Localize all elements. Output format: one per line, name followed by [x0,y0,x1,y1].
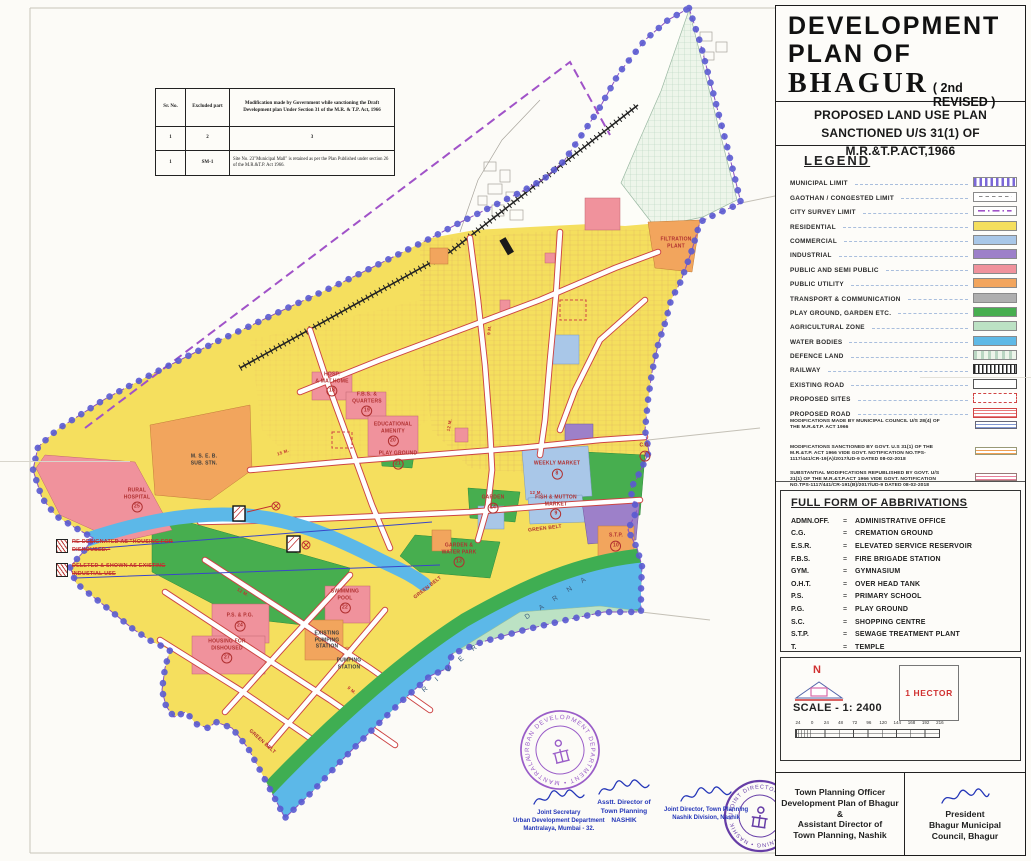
deletion-note-text: RE-DESIGNATED AS "HOUSING FOR DISHOUSED.… [72,538,190,554]
abbreviation-full: PLAY GROUND [855,606,908,613]
table-header-row: Sr. No. Excluded part Modification made … [156,89,394,127]
legend-leader [849,342,968,343]
table-header: Modification made by Government while sa… [230,89,394,127]
table-cell: 2 [186,127,230,151]
legend-swatch [973,350,1017,360]
legend-item: INDUSTRIAL [790,245,1017,259]
urban-development-stamp: URBAN DEVELOPMENT DEPARTMENT • MANTRALAY… [518,708,602,797]
legend-item: DEFENCE LAND [790,346,1017,360]
legend-item: PLAY GROUND, GARDEN ETC. [790,303,1017,317]
legend-item-label: DEFENCE LAND [790,353,844,360]
scale-number: 96 [863,720,875,725]
legend-item-label: SUBSTANTIAL MODIFICATIONS REPUBLISHED BY… [790,471,942,490]
president-box: PresidentBhagur MunicipalCouncil, Bhagur [905,773,1025,855]
legend-items: MUNICIPAL LIMIT GAOTHAN / CONGESTED LIMI… [790,173,1017,496]
equals-sign: = [843,556,855,563]
legend-leader [844,241,968,242]
table-cell: 1 [156,151,186,175]
scale-number: 72 [849,720,861,725]
modification-table: Sr. No. Excluded part Modification made … [155,88,395,176]
legend-item: MUNICIPAL LIMIT [790,173,1017,187]
legend-item-label: GAOTHAN / CONGESTED LIMIT [790,195,894,202]
table-cell: SM-1 [186,151,230,175]
official-title-line: Town Planning, Nashik [793,830,886,841]
legend-item: TRANSPORT & COMMUNICATION [790,288,1017,302]
signatory-title: Joint Secretary [513,809,605,817]
legend-swatch [973,393,1017,403]
signatory-dept: Town Planning [596,808,652,817]
president-signature-icon [938,788,992,808]
official-title-line: Council, Bhagur [929,831,1001,842]
table-cell: 1 [156,127,186,151]
legend-item: MODIFICATIONS SANCTIONED BY GOVT. U.S 31… [790,445,1017,470]
legend-leader [828,371,968,372]
plan-sheet: M. S. E. B. SUB. STN. RURAL HOSPITAL 25 … [0,0,1031,861]
legend-item: RAILWAY [790,360,1017,374]
official-title-line: President [929,809,1001,820]
abbreviation-full: TEMPLE [855,644,885,651]
president-lines: PresidentBhagur MunicipalCouncil, Bhagur [929,809,1001,843]
abbreviation-full: FIRE BRIGADE STATION [855,556,941,563]
equals-sign: = [843,518,855,525]
equals-sign: = [843,568,855,575]
legend-swatch [973,307,1017,317]
legend-leader [839,256,968,257]
signature-scribble-icon [678,785,734,807]
table-cell: 3 [230,127,394,151]
table-cell: Site No. 23"Municipal Mall" is retained … [230,151,394,175]
abbreviation-short: O.H.T. [791,581,843,588]
abbreviation-short: E.S.R. [791,543,843,550]
legend-item-label: MODIFICATIONS SANCTIONED BY GOVT. U.S 31… [790,445,942,464]
official-title-line: & [837,809,843,820]
legend-item-label: INDUSTRIAL [790,252,832,259]
legend-item-label: WATER BODIES [790,339,842,346]
legend-item-label: MUNICIPAL LIMIT [790,180,848,187]
legend-item-label: MODIFICATIONS MADE BY MUNICIPAL COUNCIL … [790,419,942,432]
abbreviation-short: S.T.P. [791,631,843,638]
signature-scribble-icon [596,778,652,800]
abbreviation-short: T. [791,644,843,651]
abbreviation-short: F.B.S. [791,556,843,563]
scale-number: 120 [877,720,889,725]
abbreviation-short: C.G. [791,530,843,537]
title-block: DEVELOPMENT PLAN OF BHAGUR ( 2nd REVISED… [776,6,1025,102]
plan-title-line2: PLAN OF [788,40,1015,68]
equals-sign: = [843,593,855,600]
legend-swatch [973,293,1017,303]
legend-swatch [973,264,1017,274]
signature-block: Joint Secretary Urban Development Depart… [513,788,605,833]
abbreviation-row: GYM. = GYMNASIUM [791,565,1010,578]
signature-block: Asstt. Director of Town Planning NASHIK [596,778,652,826]
legend-item: PUBLIC AND SEMI PUBLIC [790,259,1017,273]
legend-item: PROPOSED ROAD [790,403,1017,417]
legend-leader [851,285,968,286]
legend-item: WATER BODIES [790,331,1017,345]
equals-sign: = [843,581,855,588]
legend-item-label: PUBLIC UTILITY [790,281,844,288]
legend-leader [886,270,968,271]
legend-item: PROPOSED SITES [790,389,1017,403]
legend-swatch [973,336,1017,346]
legend-item: PUBLIC UTILITY [790,274,1017,288]
legend-leader [858,414,968,415]
abbreviation-rows: ADMN.OFF. = ADMINISTRATIVE OFFICE C.G. =… [791,515,1010,654]
abbreviation-full: OVER HEAD TANK [855,581,920,588]
legend-swatch [973,379,1017,389]
abbreviation-row: O.H.T. = OVER HEAD TANK [791,578,1010,591]
legend-item-label: PLAY GROUND, GARDEN ETC. [790,310,891,317]
signatory-place: Mantralaya, Mumbai - 32. [513,825,605,833]
official-title-line: Development Plan of Bhagur [781,798,898,809]
legend-swatch [973,249,1017,259]
scale-bar-subdivision [795,729,810,738]
legend-item-label: CITY SURVEY LIMIT [790,209,856,216]
legend-leader [863,213,968,214]
signature-block: Joint Director, Town Planning Nashik Div… [664,785,748,822]
abbreviation-row: ADMN.OFF. = ADMINISTRATIVE OFFICE [791,515,1010,528]
equals-sign: = [843,644,855,651]
abbreviation-short: P.G. [791,606,843,613]
abbreviation-full: GYMNASIUM [855,568,900,575]
legend-swatch [973,278,1017,288]
abbreviation-row: P.S. = PRIMARY SCHOOL [791,591,1010,604]
equals-sign: = [843,606,855,613]
equals-sign: = [843,530,855,537]
legend-leader [858,400,968,401]
abbreviation-short: S.C. [791,619,843,626]
legend-swatch [973,364,1017,374]
scale-number: 24 [792,720,804,725]
legend-item-label: PROPOSED SITES [790,396,851,403]
hatched-box-icon [56,563,68,577]
signatory-title: Joint Director, Town Planning [664,806,748,814]
legend-item-label: EXISTING ROAD [790,382,844,389]
official-title-line: Assistant Director of [798,819,883,830]
official-title-line: Town Planning Officer [795,787,886,798]
equals-sign: = [843,543,855,550]
title-panel: DEVELOPMENT PLAN OF BHAGUR ( 2nd REVISED… [775,5,1026,856]
legend-item-label: PUBLIC AND SEMI PUBLIC [790,267,879,274]
legend: LEGEND MUNICIPAL LIMIT GAOTHAN / CONGEST… [776,146,1025,482]
table-row: 1 2 3 [156,127,394,151]
abbreviation-short: GYM. [791,568,843,575]
abbreviation-full: PRIMARY SCHOOL [855,593,922,600]
legend-leader [872,328,968,329]
town-name: BHAGUR [788,68,929,100]
legend-swatch [973,177,1017,187]
deletion-note: RE-DESIGNATED AS "HOUSING FOR DISHOUSED.… [56,538,221,554]
legend-swatch [973,408,1017,418]
legend-item-label: PROPOSED ROAD [790,411,851,418]
abbreviation-short: P.S. [791,593,843,600]
legend-leader [901,198,968,199]
deletion-note: DELETED & SHOWN AS EXISTING INDUSTIAL US… [56,562,221,578]
abbreviation-row: P.G. = PLAY GROUND [791,603,1010,616]
abbreviation-full: ADMINISTRATIVE OFFICE [855,518,946,525]
legend-swatch [973,235,1017,245]
scale-number: 0 [806,720,818,725]
legend-leader [851,385,968,386]
legend-leader [843,227,968,228]
deletion-note-text: DELETED & SHOWN AS EXISTING INDUSTIAL US… [72,562,190,578]
scale-number: 24 [820,720,832,725]
legend-item: EXISTING ROAD [790,374,1017,388]
official-title-line: Bhagur Municipal [929,820,1001,831]
deletion-notes: RE-DESIGNATED AS "HOUSING FOR DISHOUSED.… [56,538,221,586]
abbreviation-row: S.C. = SHOPPING CENTRE [791,616,1010,629]
legend-leader [855,184,968,185]
signatory-dept: Urban Development Department [513,817,605,825]
legend-item: COMMERCIAL [790,231,1017,245]
scale-text: SCALE - 1: 2400 [793,702,882,714]
abbreviation-short: ADMN.OFF. [791,518,843,525]
legend-item: RESIDENTIAL [790,216,1017,230]
legend-swatch [973,221,1017,231]
abbreviation-full: SHOPPING CENTRE [855,619,926,626]
legend-item: MODIFICATIONS MADE BY MUNICIPAL COUNCIL … [790,419,1017,444]
scale-bar [795,729,940,738]
legend-swatch [973,206,1017,216]
hatched-box-icon [56,539,68,553]
abbreviation-row: C.G. = CREMATION GROUND [791,528,1010,541]
plan-title-line1: DEVELOPMENT [788,12,1015,40]
legend-item-label: TRANSPORT & COMMUNICATION [790,296,901,303]
revision-label: ( 2nd REVISED ) [933,81,1015,109]
signatory-place: NASHIK [596,817,652,826]
abbreviation-row: T. = TEMPLE [791,641,1010,654]
legend-item-label: RAILWAY [790,367,821,374]
legend-item: AGRICULTURAL ZONE [790,317,1017,331]
table-row: 1 SM-1 Site No. 23"Municipal Mall" is re… [156,151,394,175]
hector-label: 1 HECTOR [905,688,953,698]
hector-reference-box: 1 HECTOR [899,665,959,721]
legend-item: CITY SURVEY LIMIT [790,202,1017,216]
signatory-dept: Nashik Division, Nashik [664,814,748,822]
abbreviation-row: S.T.P. = SEWAGE TREATMENT PLANT [791,628,1010,641]
table-body: 1 2 3 1 SM-1 Site No. 23"Municipal Mall"… [156,127,394,175]
scale-block: N SCALE - 1: 2400 2402448729612014416819… [780,657,1021,761]
abbreviation-row: E.S.R. = ELEVATED SERVICE RESERVOIR [791,540,1010,553]
abbreviation-full: ELEVATED SERVICE RESERVOIR [855,543,972,550]
north-arrow-icon [793,678,845,702]
signature-scribble-icon [531,788,587,810]
legend-swatch [975,473,1017,481]
legend-leader [908,299,968,300]
town-planning-officer-box: Town Planning OfficerDevelopment Plan of… [776,773,905,855]
scale-number: 48 [835,720,847,725]
abbreviation-row: F.B.S. = FIRE BRIGADE STATION [791,553,1010,566]
north-label: N [813,664,821,676]
legend-swatch [973,321,1017,331]
abbreviation-full: SEWAGE TREATMENT PLANT [855,631,960,638]
legend-leader [851,357,968,358]
legend-item-label: AGRICULTURAL ZONE [790,324,865,331]
table-header: Excluded part [186,89,230,127]
legend-item-label: RESIDENTIAL [790,224,836,231]
equals-sign: = [843,619,855,626]
legend-leader [898,313,968,314]
abbreviations-title: FULL FORM OF ABBRIVATIONS [791,497,1010,509]
legend-item-label: COMMERCIAL [790,238,837,245]
legend-swatch [975,447,1017,455]
abbreviations-box: FULL FORM OF ABBRIVATIONS ADMN.OFF. = AD… [780,490,1021,652]
legend-swatch [973,192,1017,202]
equals-sign: = [843,631,855,638]
officials-block: Town Planning OfficerDevelopment Plan of… [776,772,1025,855]
legend-swatch [975,421,1017,429]
signatory-title: Asstt. Director of [596,799,652,808]
legend-item: GAOTHAN / CONGESTED LIMIT [790,187,1017,201]
table-header: Sr. No. [156,89,186,127]
plan-subtitle-line1: PROPOSED LAND USE PLAN [778,106,1023,124]
abbreviation-full: CREMATION GROUND [855,530,933,537]
